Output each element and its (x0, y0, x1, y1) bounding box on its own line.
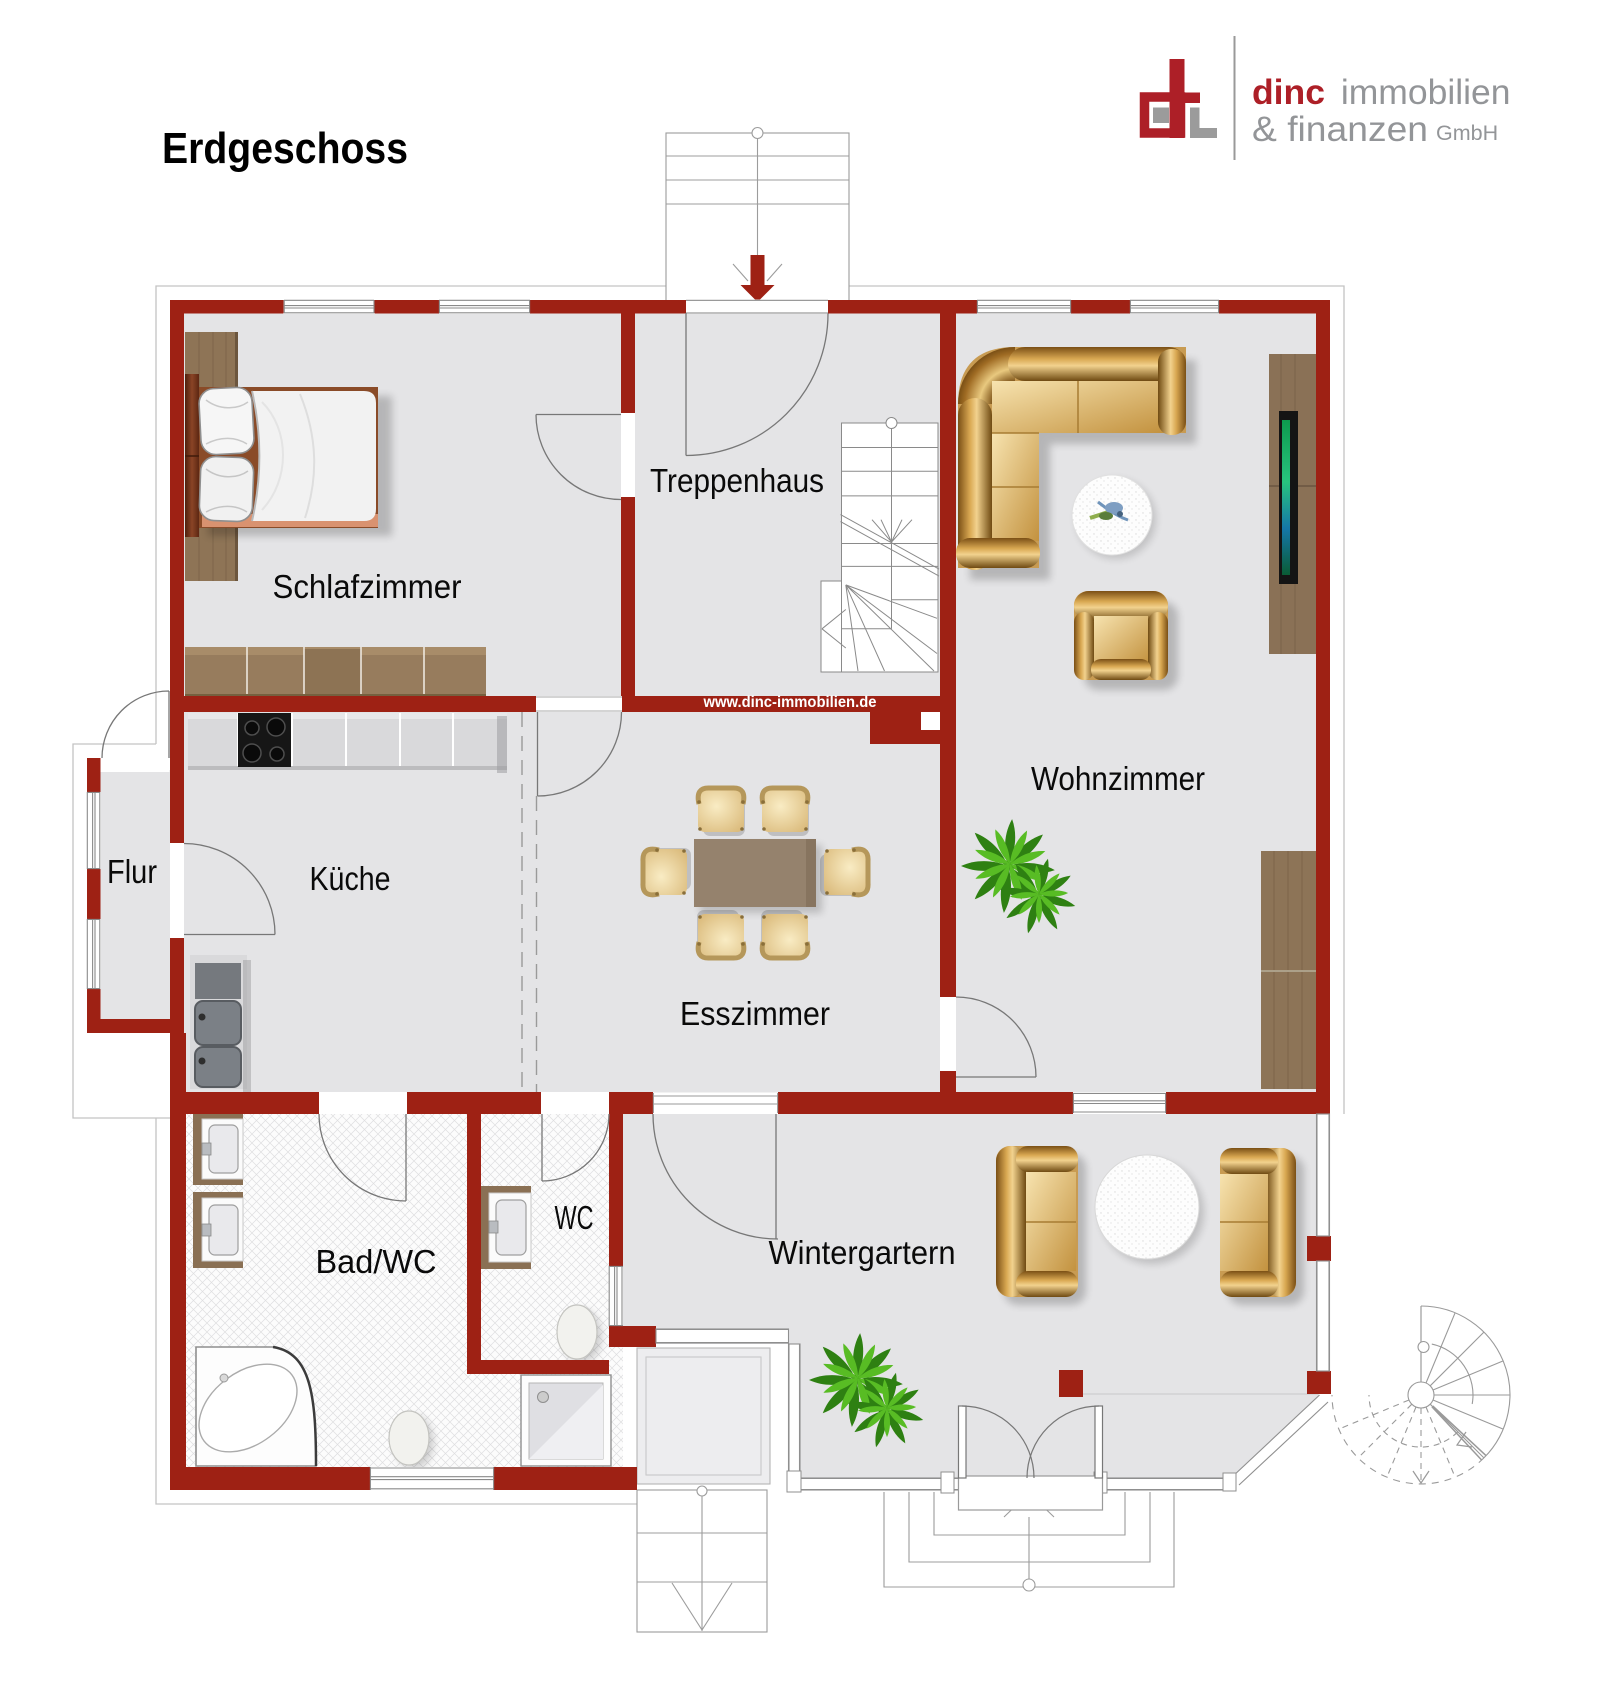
svg-text:Wohnzimmer: Wohnzimmer (1031, 760, 1205, 797)
svg-text:WC: WC (555, 1199, 594, 1236)
svg-text:GmbH: GmbH (1436, 121, 1498, 145)
svg-text:www.dinc-immobilien.de: www.dinc-immobilien.de (703, 694, 877, 711)
svg-text:Bad/WC: Bad/WC (316, 1243, 437, 1280)
svg-text:Wintergartern: Wintergartern (769, 1234, 956, 1271)
svg-text:Schlafzimmer: Schlafzimmer (273, 568, 462, 605)
svg-text:Treppenhaus: Treppenhaus (650, 462, 824, 499)
svg-text:Küche: Küche (310, 860, 391, 897)
svg-text:Flur: Flur (107, 853, 157, 890)
svg-text:& finanzen: & finanzen (1252, 109, 1428, 149)
svg-text:dinc immobilien: dinc immobilien (1252, 72, 1511, 112)
svg-text:Esszimmer: Esszimmer (680, 995, 830, 1032)
svg-text:Erdgeschoss: Erdgeschoss (162, 124, 408, 173)
